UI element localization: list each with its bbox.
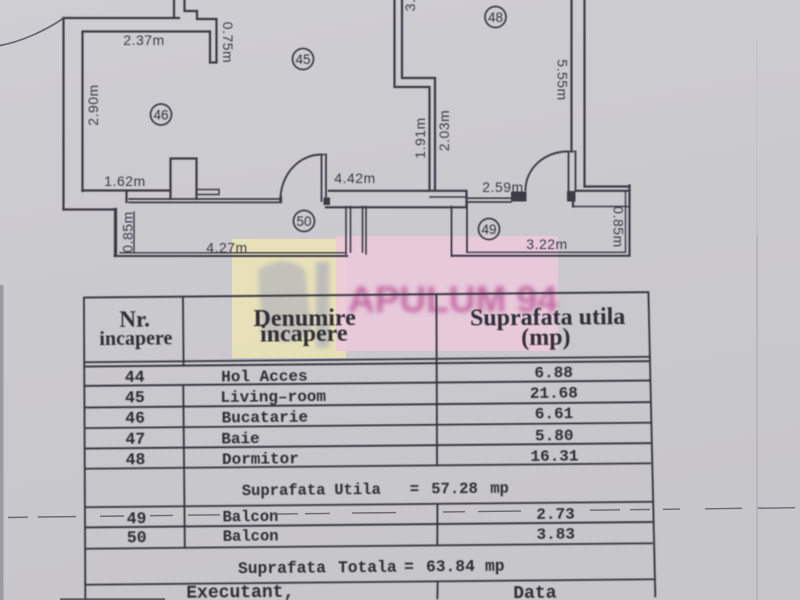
- svg-text:1.62m: 1.62m: [104, 173, 145, 189]
- svg-text:2.90m: 2.90m: [85, 84, 101, 125]
- svg-text:incapere: incapere: [260, 321, 348, 348]
- svg-text:48: 48: [125, 450, 145, 469]
- svg-text:21.68: 21.68: [530, 385, 578, 403]
- svg-text:47: 47: [125, 430, 145, 449]
- svg-text:4.42m: 4.42m: [334, 170, 375, 186]
- svg-text:44: 44: [125, 368, 145, 387]
- svg-text:49: 49: [481, 222, 496, 237]
- svg-text:45: 45: [125, 388, 145, 407]
- svg-text:3.83: 3.83: [536, 526, 575, 544]
- svg-text:3.22m: 3.22m: [526, 236, 567, 252]
- svg-text:Bucatarie: Bucatarie: [222, 409, 309, 428]
- svg-text:Baie: Baie: [221, 430, 260, 448]
- svg-text:49: 49: [127, 509, 147, 528]
- svg-text:Suprafata: Suprafata: [242, 482, 326, 501]
- svg-text:incapere: incapere: [99, 328, 172, 351]
- svg-text:57.28: 57.28: [431, 480, 478, 498]
- svg-text:=: =: [410, 481, 419, 499]
- svg-text:0.85m: 0.85m: [611, 206, 627, 247]
- svg-text:Dormitor: Dormitor: [222, 450, 299, 469]
- svg-text:Totala: Totala: [338, 558, 397, 578]
- svg-text:2.73: 2.73: [536, 506, 575, 524]
- svg-text:46: 46: [153, 107, 168, 122]
- svg-text:0.75m: 0.75m: [220, 22, 236, 63]
- svg-text:2.37m: 2.37m: [123, 32, 164, 48]
- svg-text:Living–room: Living–room: [220, 388, 326, 407]
- svg-text:46: 46: [125, 409, 145, 428]
- svg-text:Utila: Utila: [334, 481, 381, 499]
- svg-text:=: =: [404, 558, 414, 577]
- svg-text:6.61: 6.61: [535, 405, 574, 423]
- svg-text:3.: 3.: [402, 0, 418, 11]
- svg-text:Executant,: Executant,: [186, 583, 294, 600]
- svg-text:5.55m: 5.55m: [555, 59, 571, 100]
- svg-text:16.31: 16.31: [530, 447, 578, 465]
- svg-text:2.03m: 2.03m: [436, 110, 452, 151]
- svg-text:4.27m: 4.27m: [206, 240, 247, 256]
- svg-text:mp: mp: [485, 557, 505, 576]
- svg-text:Balcon: Balcon: [222, 508, 278, 527]
- svg-text:50: 50: [296, 214, 311, 229]
- svg-text:Balcon: Balcon: [223, 527, 279, 546]
- svg-text:Hol Acces: Hol Acces: [221, 368, 308, 387]
- svg-text:Suprafata: Suprafata: [238, 558, 326, 578]
- svg-text:(mp): (mp): [521, 325, 571, 351]
- svg-text:2.59m: 2.59m: [482, 179, 523, 195]
- svg-text:1.91m: 1.91m: [412, 117, 428, 158]
- svg-text:Data: Data: [513, 584, 557, 600]
- svg-text:6.88: 6.88: [534, 364, 573, 382]
- svg-text:63.84: 63.84: [426, 557, 475, 576]
- svg-text:5.80: 5.80: [535, 427, 574, 445]
- svg-text:50: 50: [127, 528, 147, 547]
- svg-text:45: 45: [295, 52, 310, 67]
- svg-text:mp: mp: [490, 480, 509, 498]
- svg-text:0.85m: 0.85m: [120, 211, 136, 252]
- svg-text:48: 48: [488, 10, 503, 25]
